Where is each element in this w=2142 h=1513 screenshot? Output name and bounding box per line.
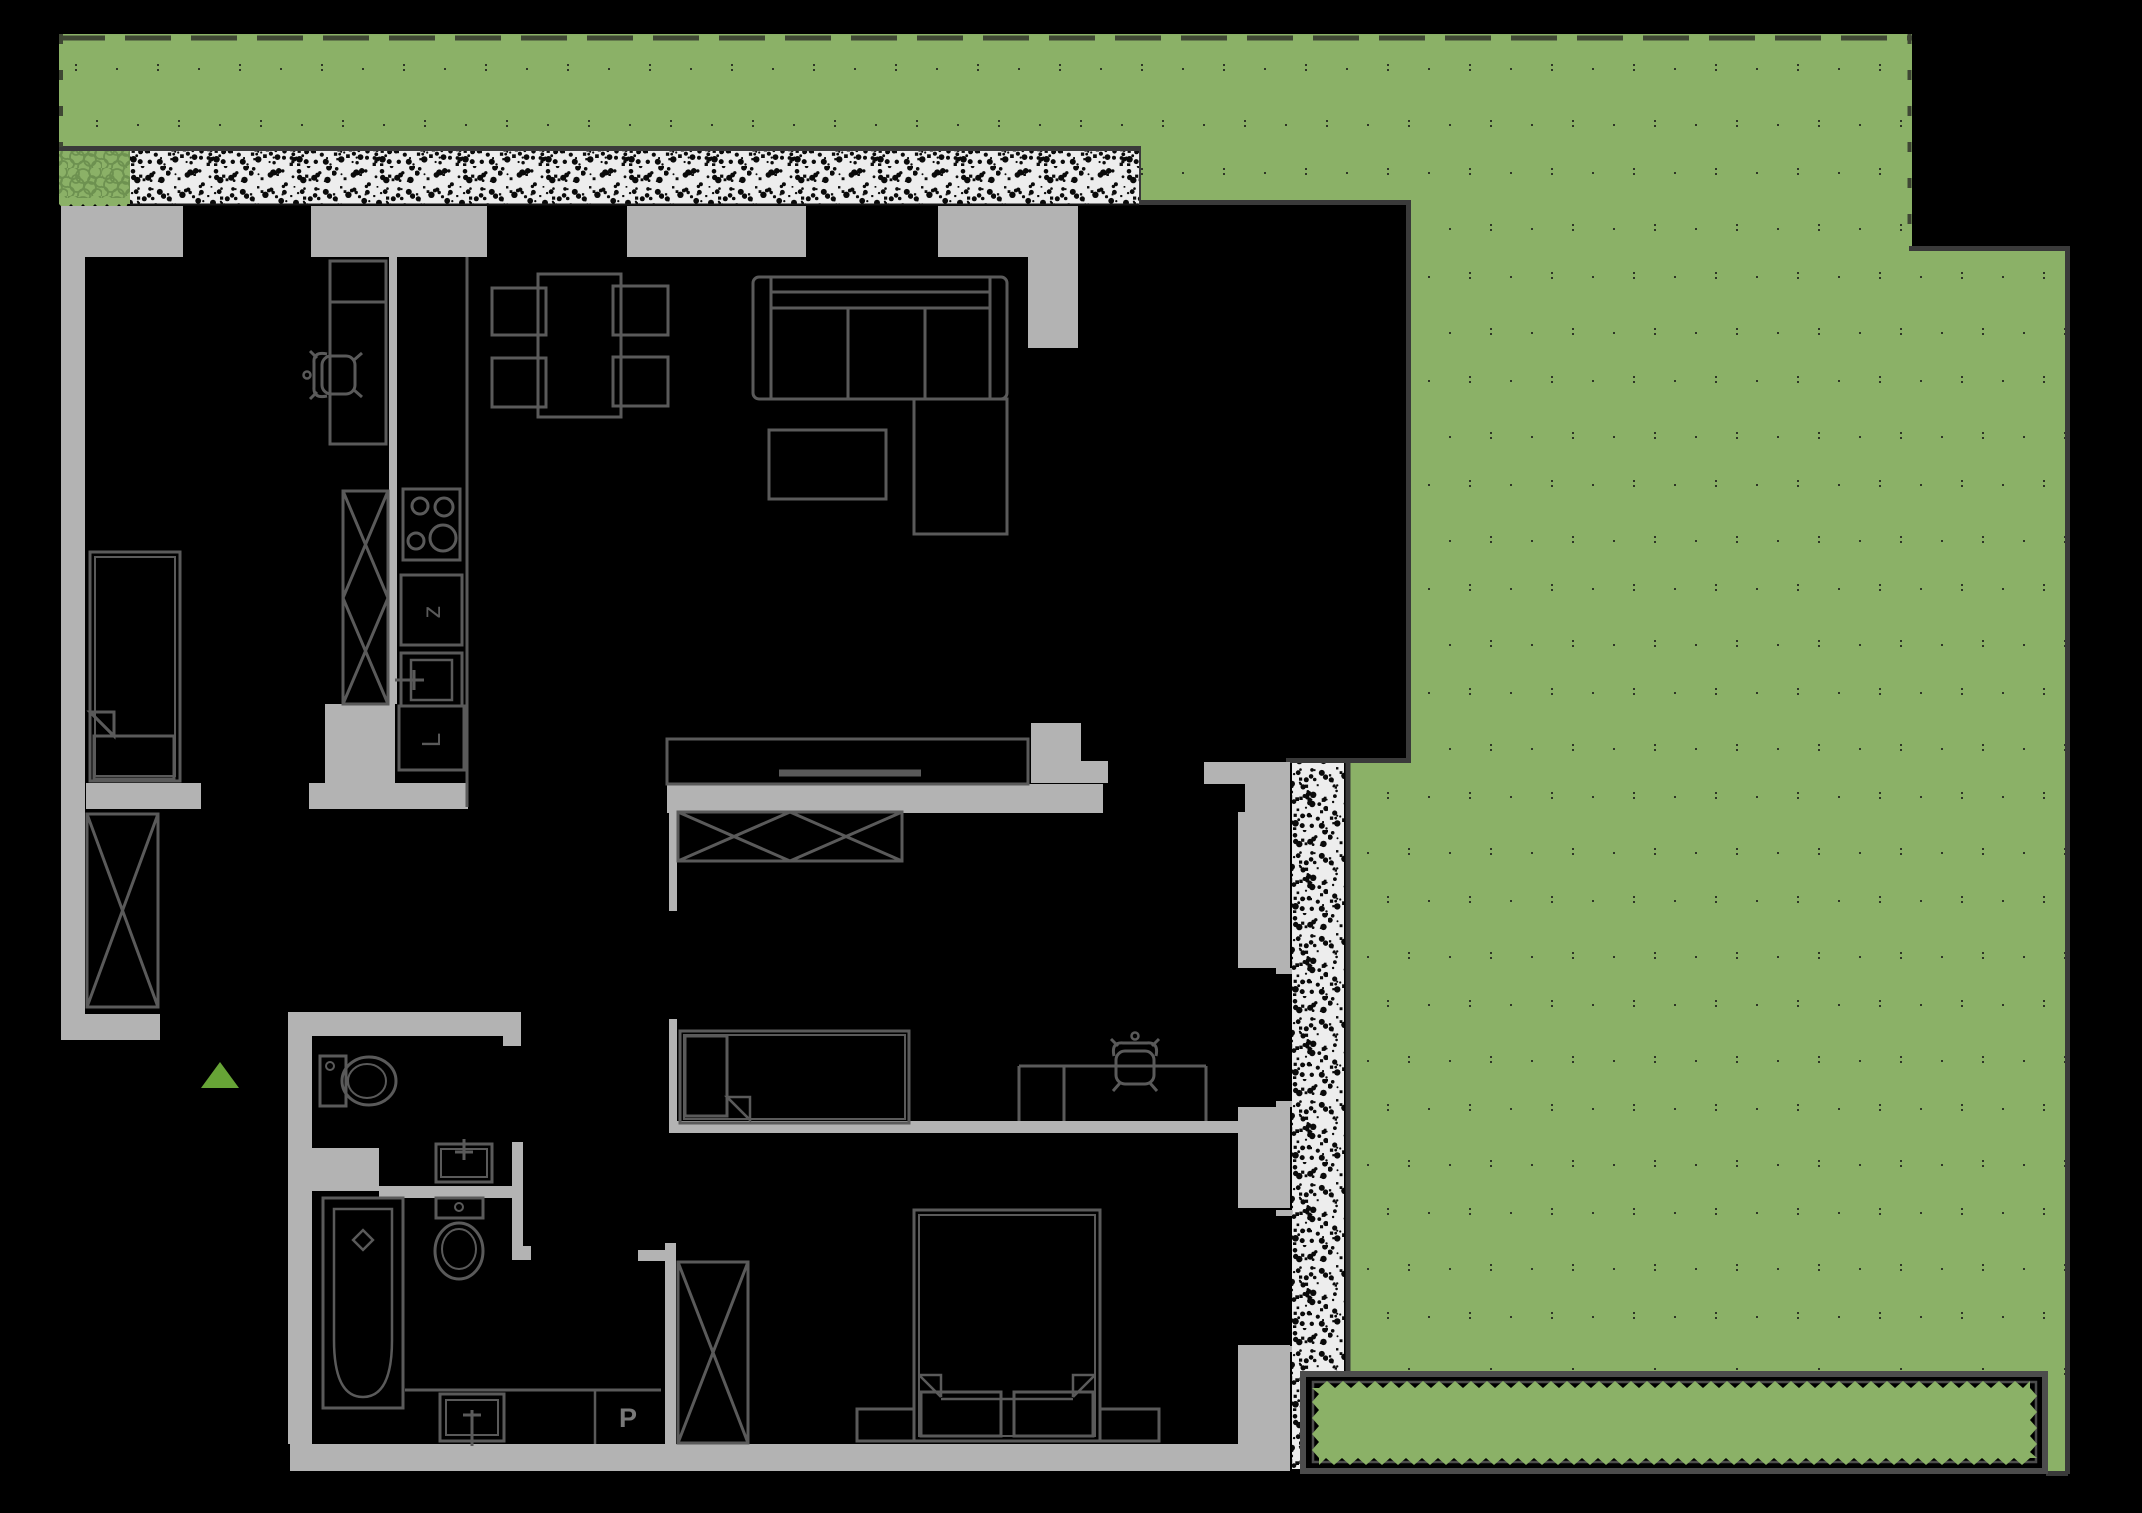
svg-text:P: P [619, 1403, 637, 1433]
svg-text:z: z [416, 606, 446, 619]
svg-text:L: L [416, 733, 446, 747]
